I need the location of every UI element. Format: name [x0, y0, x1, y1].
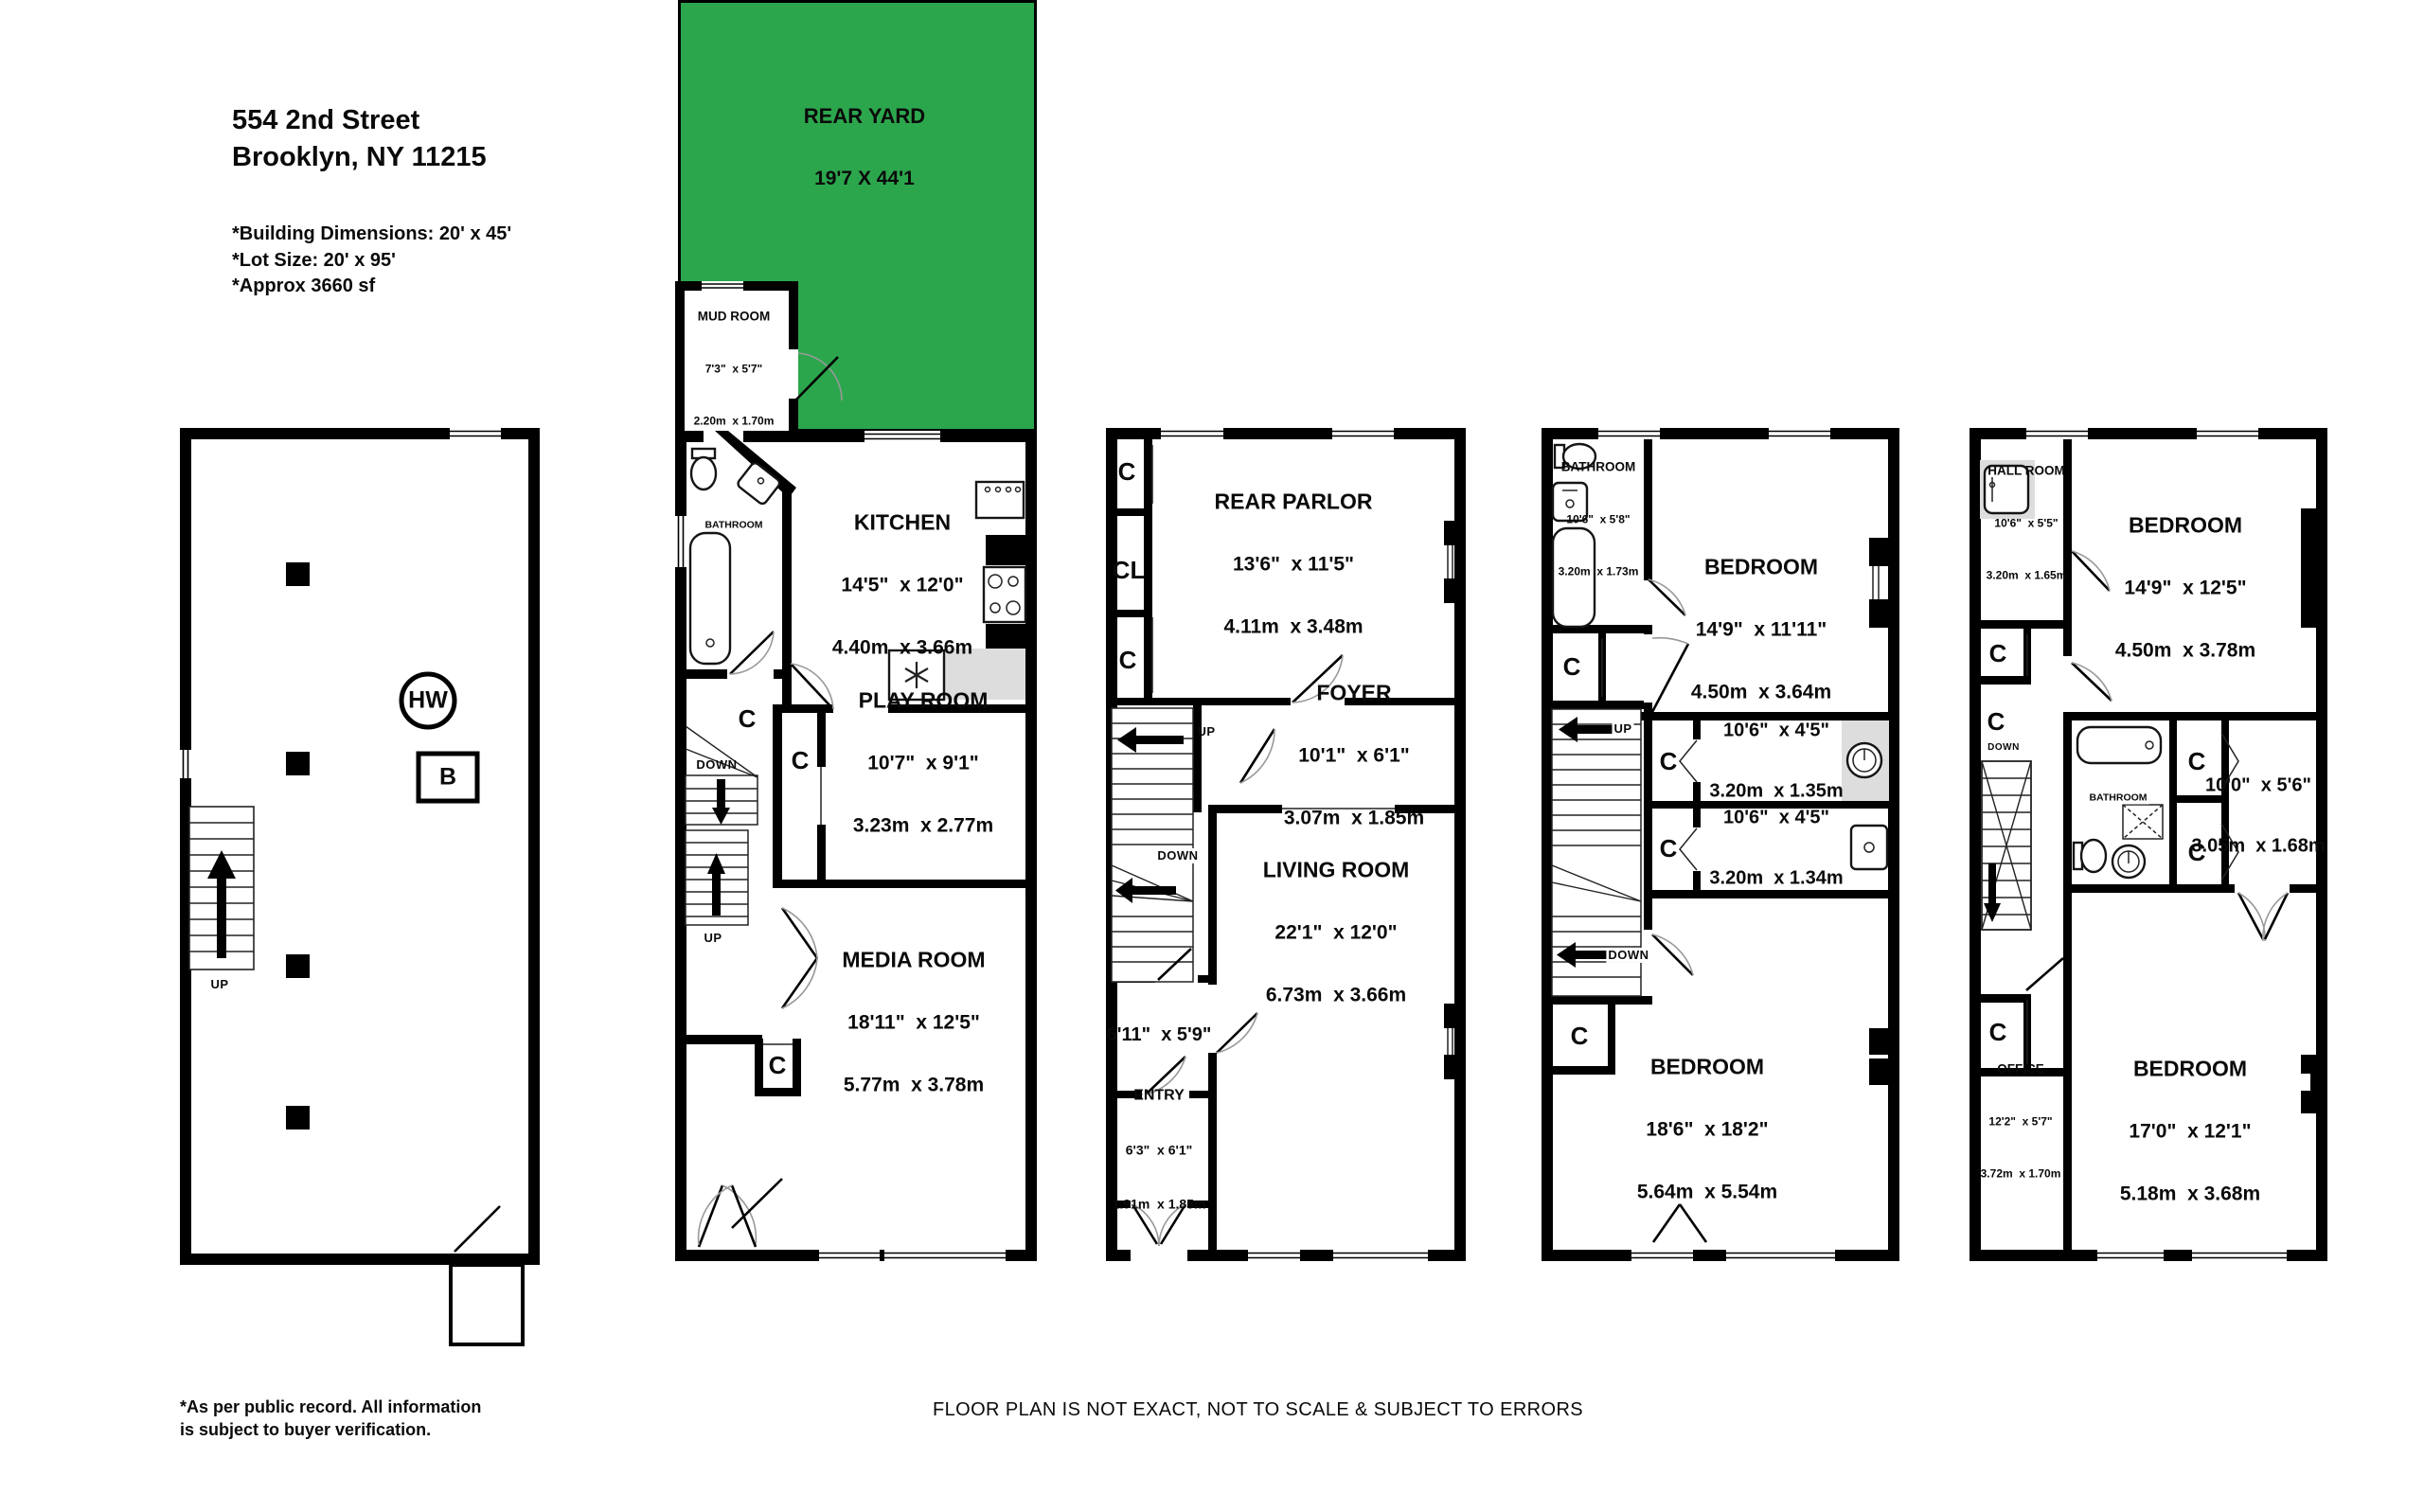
bathtub-icon [690, 533, 730, 664]
closet-label: CL [1113, 555, 1146, 585]
public-record-disclaimer: *As per public record. All information i… [180, 1396, 481, 1442]
office-label: OFFICE 12'2" x 5'7" 3.72m x 1.70m [1981, 1023, 2061, 1218]
bathroom-label: BATHROOM [704, 519, 762, 531]
staircase-icon [1982, 761, 2031, 930]
property-address: 554 2nd Street Brooklyn, NY 11215 [232, 102, 487, 176]
play-room-label: PLAY ROOM 10'7" x 9'1" 3.23m x 2.77m [853, 649, 993, 875]
hot-water-label: HW [408, 686, 448, 716]
plan-fourth-floor: HALL ROOM 10'6" x 5'5" 3.20m x 1.65m BED… [1969, 428, 2327, 1271]
stairs-up-label: UP [210, 977, 228, 992]
living-room-label: LIVING ROOM 22'1" x 12'0" 6.73m x 3.66m [1263, 818, 1410, 1044]
stairs-up-label: UP [1197, 724, 1215, 739]
bathroom-label: BATHROOM 10'6" x 5'8" 3.20m x 1.73m [1559, 421, 1639, 615]
square-sink-icon [1851, 826, 1887, 869]
stairs-up-label: UP [1612, 721, 1633, 737]
boiler-label: B [439, 763, 456, 792]
hall-room-mid-label: 10'0" x 5'6" 3.05m x 1.68m [2191, 737, 2325, 897]
stairs-down-label: DOWN [1987, 742, 2020, 754]
address-line-2: Brooklyn, NY 11215 [232, 139, 487, 176]
closet-label: C [769, 1050, 787, 1080]
round-sink-icon [1847, 743, 1881, 777]
note-approx-area: *Approx 3660 sf [232, 274, 511, 300]
mud-room-door [795, 353, 842, 400]
rear-yard-label: REAR YARD 19'7 X 44'1 [804, 65, 925, 228]
disclaimer-line-2: is subject to buyer verification. [180, 1418, 481, 1441]
hall-room-label: HALL ROOM 10'6" x 5'5" 3.20m x 1.65m [1987, 425, 2067, 619]
closet-label: C [792, 745, 810, 775]
stairs-down-label: DOWN [696, 757, 737, 773]
bedroom-rear-label: BEDROOM 14'9" x 12'5" 4.50m x 3.78m [2115, 473, 2255, 700]
room-name: REAR YARD [804, 103, 925, 129]
room-dims: 19'7 X 44'1 [804, 166, 925, 190]
plan-third-floor: BATHROOM 10'6" x 5'8" 3.20m x 1.73m BEDR… [1542, 428, 1899, 1271]
hall-room-b-label: 10'6" x 4'5" 3.20m x 1.34m [1709, 769, 1843, 929]
media-room-label: MEDIA ROOM 18'11" x 12'5" 5.77m x 3.78m [842, 908, 985, 1134]
kitchen-appliance-icon [976, 482, 1024, 518]
floor-plan-sheet: 554 2nd Street Brooklyn, NY 11215 *Build… [0, 0, 2424, 1512]
stairs-down-label: DOWN [1606, 948, 1650, 963]
closet-label: C [1989, 638, 2007, 668]
round-sink-icon [2112, 845, 2145, 878]
closet-label: C [1660, 833, 1678, 863]
note-building-dimensions: *Building Dimensions: 20' x 45' [232, 222, 511, 248]
closet-label: C [1118, 456, 1136, 487]
stairs-up-label: UP [704, 931, 722, 946]
bathtub-icon [2077, 727, 2161, 763]
plan-cellar: HW B UP [180, 428, 540, 1351]
address-line-1: 554 2nd Street [232, 102, 487, 139]
bedroom-front-label: BEDROOM 18'6" x 18'2" 5.64m x 5.54m [1637, 1015, 1777, 1241]
floor-plan-disclaimer: FLOOR PLAN IS NOT EXACT, NOT TO SCALE & … [933, 1399, 1583, 1421]
cellar-drawing [180, 428, 540, 1351]
closet-label: C [1571, 1021, 1589, 1051]
mud-room-label: MUD ROOM 7'3" x 5'7" 2.20m x 1.70m [694, 271, 775, 465]
closet-label: C [1563, 651, 1581, 682]
stairs-up-icon [189, 807, 254, 969]
property-notes: *Building Dimensions: 20' x 45' *Lot Siz… [232, 222, 511, 300]
disclaimer-line-1: *As per public record. All information [180, 1396, 481, 1418]
toilet-icon [2074, 840, 2106, 872]
stairs-up-icon [686, 830, 748, 925]
closet-label: C [739, 703, 757, 734]
bedroom-front-label: BEDROOM 17'0" x 12'1" 5.18m x 3.68m [2120, 1017, 2260, 1243]
stove-icon [984, 567, 1025, 622]
plan-garden-floor: MUD ROOM 7'3" x 5'7" 2.20m x 1.70m BATHR… [675, 281, 1037, 1266]
bathroom-label: BATHROOM [2087, 792, 2148, 804]
closet-label: C [1987, 706, 2005, 737]
closet-label: C [1660, 746, 1678, 776]
counter [986, 535, 1025, 565]
closet-label: C [1119, 645, 1137, 675]
entry-label: ENTRY 6'3" x 6'1" 1.91m x 1.85m [1113, 1048, 1206, 1250]
plan-parlor-floor: C CL C REAR PARLOR 13'6" x 11'5" 4.11m x… [1106, 428, 1466, 1271]
staircase-icon [1112, 708, 1193, 982]
note-lot-size: *Lot Size: 20' x 95' [232, 248, 511, 275]
stairs-down-label: DOWN [1155, 848, 1200, 863]
